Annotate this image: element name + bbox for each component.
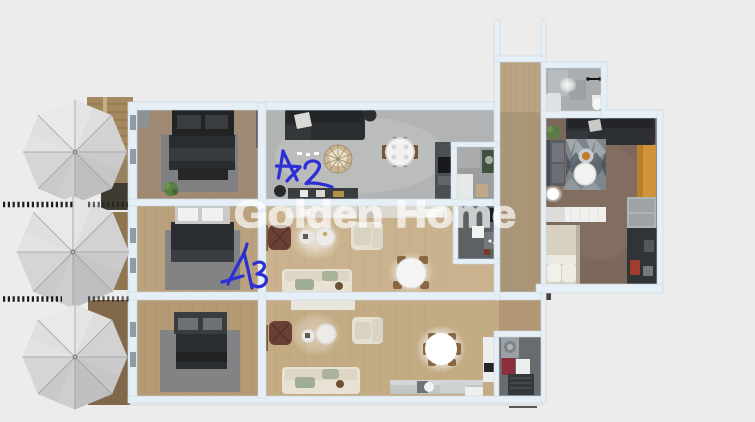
svg-text:Golden Home: Golden Home bbox=[234, 194, 516, 236]
